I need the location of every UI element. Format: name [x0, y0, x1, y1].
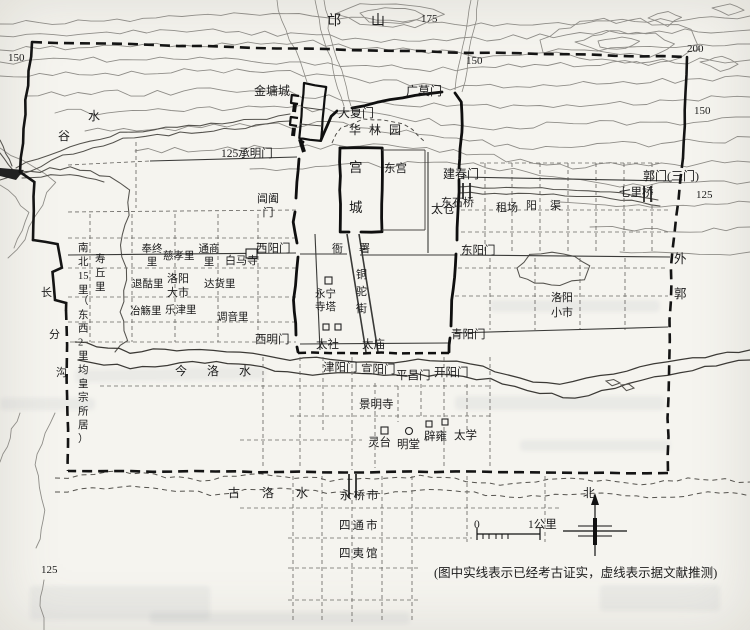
nanbei15li-label: 南北15里 — [78, 241, 89, 296]
rivers-segment — [621, 384, 634, 391]
inner-city-wall-segment — [459, 140, 461, 168]
contour-lines-segment — [0, 57, 750, 72]
lingtai-label: 灵台 — [368, 435, 391, 449]
taishe-label: 太社 — [316, 337, 339, 351]
cixiaoli-label: 慈孝里 — [163, 249, 195, 262]
yashu-label-2: 署 — [359, 242, 370, 255]
contour-lines-segment — [0, 69, 750, 90]
changfengou-label-3: 沟 — [56, 366, 67, 379]
main-streets-segment — [455, 327, 668, 333]
jinyong-city-segment — [294, 104, 295, 112]
zuchang-label: 租场 — [496, 200, 518, 214]
ximingmen-label: 西明门 — [255, 332, 290, 346]
taixue-label: 太学 — [454, 428, 477, 442]
pingchangmen-label: 平昌门 — [396, 368, 431, 382]
contour-label-125-sw: 125 — [41, 564, 58, 576]
rivers-segment — [606, 380, 620, 386]
tiaoyinli-label: 调音里 — [217, 310, 249, 323]
contour-label-175: 175 — [421, 13, 438, 25]
main-streets-segment — [461, 177, 672, 181]
contour-label-200-ne: 200 — [687, 43, 704, 55]
inner-city-wall-segment — [296, 353, 449, 354]
inner-city-wall-segment — [457, 180, 459, 240]
jin-luo-shui-label: 今洛水 — [175, 363, 271, 378]
outer-city-boundary-segment — [66, 310, 68, 471]
kaiyangmen-label: 开阳门 — [434, 365, 469, 379]
rivers-segment — [517, 252, 590, 285]
yashu-label-1: 衙 — [332, 242, 343, 255]
sitongshi-label: 四通市 — [339, 518, 380, 532]
jinyongcheng-label: 金墉城 — [254, 83, 290, 98]
contour-lines-segment — [590, 226, 750, 232]
baimasi-label: 白马寺 — [225, 253, 258, 267]
jinyong-city-segment — [300, 124, 322, 126]
fengzhongli-label: 奉终里 — [142, 242, 163, 268]
rivers-segment — [55, 486, 750, 498]
gongcheng-label: 宫城 — [349, 160, 363, 215]
hualinyuan-label: 华林园 — [349, 123, 409, 137]
palace-city-wall-segment — [340, 148, 349, 232]
changfengou-label-1: 长 — [41, 286, 52, 299]
luoyang-archaeological-map: 175150150200150125125邙山谷水长分沟今洛水古洛水阳渠金墉城大… — [0, 0, 750, 630]
donggong-enclosure — [382, 150, 425, 230]
biyong-label: 辟雍 — [424, 429, 447, 443]
jinyong-city-segment — [301, 107, 323, 110]
yang-qu-label: 阳渠 — [526, 199, 574, 212]
contour-label-150-nw: 150 — [8, 52, 25, 64]
jingmingsi-label: 景明寺 — [359, 398, 394, 411]
jinyong-city-segment — [293, 128, 294, 136]
taimiao-label: 太庙 — [362, 337, 385, 351]
contour-lines-segment — [0, 185, 29, 248]
outer-city-boundary-segment — [33, 240, 66, 310]
contour-lines-segment — [0, 413, 20, 462]
taishe-altar-icon — [323, 324, 329, 330]
chengmingmen-label: 125承明门 — [221, 146, 273, 160]
donggong-label: 东宫 — [384, 161, 407, 175]
dongyangmen-label: 东阳门 — [461, 243, 496, 257]
lingtai-platform-icon — [381, 427, 388, 434]
map-labels: 175150150200150125125邙山谷水长分沟今洛水古洛水阳渠金墉城大… — [8, 13, 717, 580]
outer-city-boundary-segment — [68, 471, 668, 473]
biyong-icon-a — [426, 421, 432, 427]
dongxi2li-label: （东西2里均皇宗所居） — [78, 295, 89, 445]
qiliqiao-label: 七里桥 — [619, 186, 654, 199]
taimiao-altar-icon — [335, 324, 341, 330]
luoyangxiaoshi-label: 洛阳小市 — [551, 290, 573, 319]
yeshangli-label: 冶觞里 — [130, 304, 162, 317]
contour-lines-segment — [560, 201, 750, 207]
yongningsi-pagoda-icon — [325, 277, 332, 284]
north-label: 北 — [583, 486, 595, 500]
contour-label-150-ne: 150 — [694, 105, 711, 117]
mang-shan-label: 邙山 — [327, 13, 415, 29]
inner-city-wall-segment — [297, 347, 298, 352]
guangmomen-label: 广莫门 — [406, 83, 442, 98]
contour-lines-segment — [25, 88, 750, 108]
street-grid-segment — [68, 161, 150, 165]
contour-lines-segment — [712, 4, 744, 15]
inner-city-wall-segment — [296, 159, 299, 198]
inner-city-wall-segment — [451, 254, 456, 326]
contour-label-150-n: 150 — [466, 55, 483, 67]
outer-city-boundary-segment — [683, 57, 687, 158]
mingtang-label: 明堂 — [397, 438, 420, 451]
scale-label-1km: 1公里 — [528, 518, 557, 531]
xiyangmen-label: 西阳门 — [256, 241, 291, 255]
gu-shui-label-2: 水 — [88, 109, 100, 123]
inner-city-wall-segment — [294, 257, 299, 335]
taicang-label: 太仓 — [431, 201, 455, 216]
waiguo-label: 外郭 — [674, 252, 687, 301]
contour-lines — [0, 4, 750, 630]
contour-lines-segment — [35, 413, 55, 548]
xuanyangmen-label: 宣阳门 — [361, 362, 396, 376]
changhemen-label: 阊阖门 — [257, 191, 279, 219]
gu-luo-shui-label: 古洛水 — [228, 485, 330, 500]
daxiamen-label: 大夏门 — [338, 105, 374, 120]
biyong-icon-b — [442, 419, 448, 425]
shouqiuli-label: 寿丘里 — [95, 252, 106, 293]
inner-city-wall-segment — [449, 338, 450, 352]
jinyong-city-segment — [290, 117, 298, 126]
gu-shui-label-1: 谷 — [58, 129, 70, 143]
tongshangli-label: 通商里 — [199, 242, 220, 268]
contour-lines-segment — [40, 580, 44, 630]
yongqiaoshi-label: 永桥市 — [340, 488, 381, 502]
qingyangmen-label: 青阳门 — [451, 327, 486, 341]
lejinli-label: 乐津里 — [165, 304, 197, 316]
contour-lines-segment — [540, 18, 700, 65]
scale-label-0: 0 — [474, 519, 480, 531]
jinyangmen-label: 津阳门 — [323, 360, 358, 374]
tongtuojie-label: 铜驼街 — [356, 267, 367, 315]
map-canvas: 175150150200150125125邙山谷水长分沟今洛水古洛水阳渠金墉城大… — [0, 0, 750, 630]
jianchunmen-label: 建春门 — [443, 166, 479, 181]
compass-rose — [563, 493, 627, 556]
roads-to-mangshan-segment — [277, 0, 307, 82]
contour-lines-segment — [700, 56, 738, 71]
roads-to-mangshan-segment — [455, 0, 471, 90]
tuiguli-label: 退酤里 — [132, 277, 164, 290]
rivers-segment — [20, 167, 130, 352]
luoyangdashi-label: 洛阳大市 — [167, 271, 189, 299]
jinyong-city — [290, 83, 326, 152]
outer-city-boundary-segment — [32, 42, 687, 57]
roads-to-mangshan-segment — [462, 0, 478, 92]
mingtang-hall-icon — [406, 428, 413, 435]
guomen-label: 郭门(三门) — [643, 168, 699, 183]
caption: (图中实线表示已经考古证实，虚线表示据文献推测) — [434, 565, 717, 580]
jinyong-city-segment — [291, 95, 299, 104]
contour-label-125-e: 125 — [696, 189, 713, 201]
changfengou-label-2: 分 — [49, 328, 60, 341]
siyiguan-label: 四夷馆 — [339, 546, 380, 560]
dahuoli-label: 达货里 — [204, 277, 236, 290]
inner-city-wall-segment — [455, 93, 462, 140]
contour-lines-segment — [575, 31, 675, 58]
